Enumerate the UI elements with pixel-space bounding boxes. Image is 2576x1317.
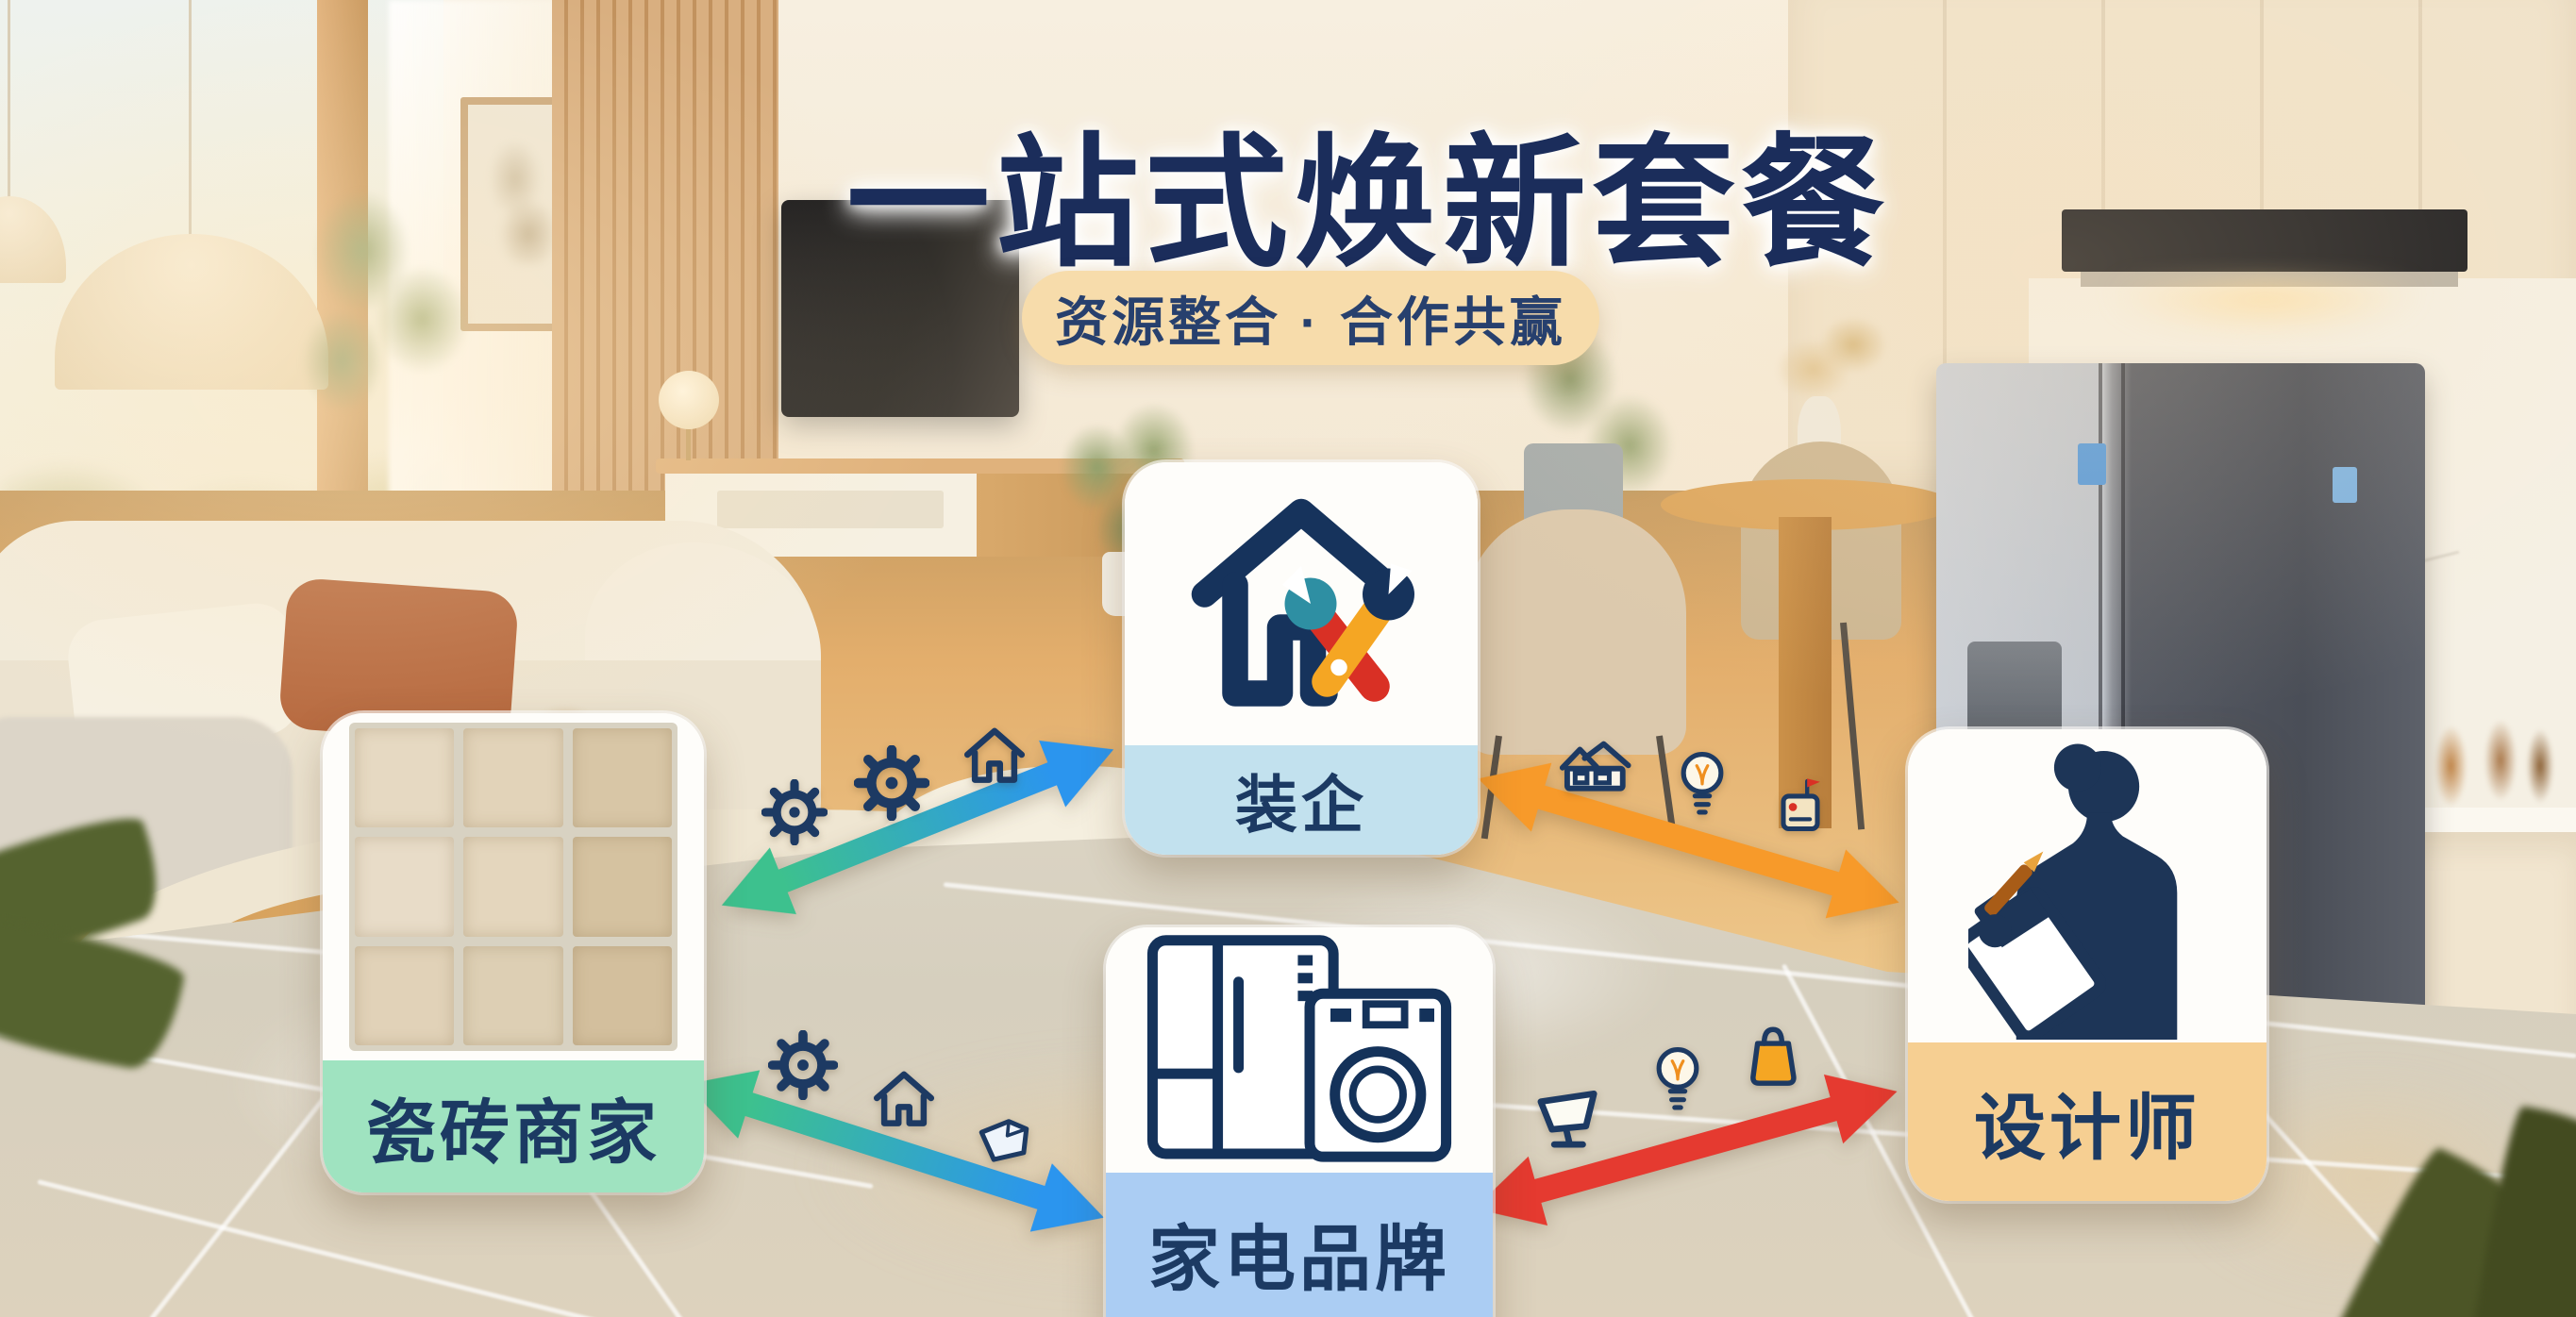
lamp-cord [189, 0, 192, 236]
node-card-designer: 设计师 [1908, 729, 2267, 1201]
card-icon-area [1908, 729, 2267, 1042]
card-label: 设计师 [1908, 1042, 2267, 1201]
house-icon [870, 1064, 938, 1132]
table-lamp [659, 371, 719, 429]
gear-icon [761, 779, 828, 845]
table-lamp-stand [686, 426, 691, 460]
fridge-washer-icon [1144, 931, 1455, 1169]
poster-canvas: 一站式焕新套餐 资源整合 · 合作共赢 装企 [0, 0, 2576, 1317]
shopping-bag-icon [1736, 1017, 1810, 1091]
lightbulb-icon [1648, 1040, 1708, 1128]
cart-icon [1531, 1075, 1610, 1155]
indoor-plant [283, 156, 481, 429]
node-card-zhuangqi: 装企 [1125, 462, 1478, 855]
card-label: 瓷砖商家 [323, 1060, 704, 1192]
house-sketch-icon [1557, 732, 1636, 811]
wood-slat-panel [552, 0, 778, 533]
range-hood [2062, 209, 2467, 272]
subtitle-text: 资源整合 · 合作共赢 [1055, 280, 1566, 357]
lightbulb-icon [1672, 745, 1732, 832]
poster-title: 一站式焕新套餐 [802, 87, 1934, 294]
card-icon-area [1125, 462, 1478, 745]
designer-silhouette-icon [1968, 732, 2206, 1040]
node-card-tile-merchant: 瓷砖商家 [323, 713, 704, 1192]
card-label: 装企 [1125, 745, 1478, 855]
gear-icon [768, 1030, 838, 1100]
gift-bag-icon [1766, 772, 1834, 840]
tile-samples-icon [349, 723, 677, 1051]
card-label: 家电品牌 [1106, 1173, 1493, 1317]
card-icon-area [1106, 927, 1493, 1173]
tv-console-shelf [717, 491, 944, 528]
node-card-appliance-brand: 家电品牌 [1106, 927, 1493, 1317]
lamp-cord [8, 0, 10, 198]
wall-art [489, 142, 555, 265]
dining-chair [1464, 509, 1686, 755]
utensil-holders [2416, 698, 2557, 811]
flyer-icon [970, 1104, 1038, 1172]
gear-icon [854, 745, 929, 821]
house-with-tools-icon [1183, 486, 1419, 722]
house-icon [961, 721, 1029, 789]
card-icon-area [323, 713, 704, 1060]
subtitle-banner: 资源整合 · 合作共赢 [1022, 271, 1599, 365]
